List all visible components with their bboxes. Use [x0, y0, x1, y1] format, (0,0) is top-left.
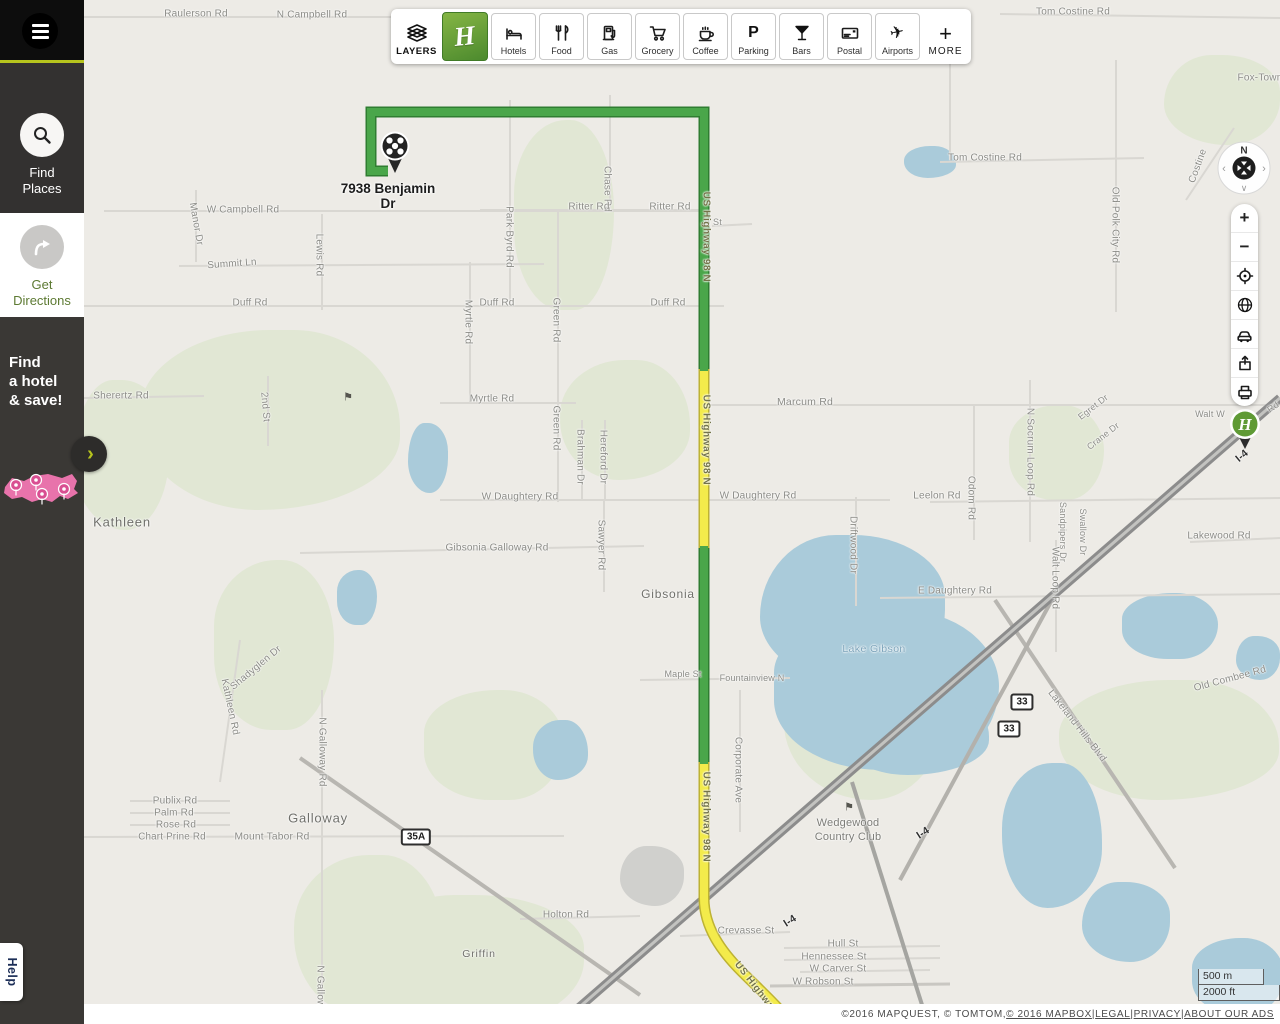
road-label: Ritter Rd	[568, 202, 609, 213]
layers-icon	[405, 21, 429, 47]
road-label: N Campbell Rd	[277, 10, 347, 21]
destination-address-label: 7938 Benjamin Dr	[341, 181, 436, 211]
road-label: Odom Rd	[966, 476, 977, 520]
chevron-right-icon: ›	[87, 443, 94, 466]
toolbar-food-button[interactable]: Food	[539, 13, 584, 60]
zoom-in-button[interactable]: +	[1231, 204, 1258, 233]
attribution-link[interactable]: ABOUT OUR ADS	[1184, 1009, 1274, 1020]
layers-button[interactable]: LAYERS	[394, 13, 439, 60]
road-label: Ritter Rd	[649, 202, 690, 213]
hotel-ad-banner[interactable]: Find a hotel & save!	[0, 317, 84, 1024]
toolbar-button-label: Airports	[882, 46, 913, 56]
compass-control[interactable]: N ‹ › ∨	[1216, 140, 1272, 196]
globe-icon	[1236, 296, 1254, 314]
road-label: W Campbell Rd	[207, 205, 280, 216]
road-label: Duff Rd	[479, 298, 514, 309]
road-label: Raulerson Rd	[164, 9, 228, 20]
toolbar-bars-button[interactable]: Bars	[779, 13, 824, 60]
road-label: Leelon Rd	[913, 491, 960, 502]
zoom-out-button[interactable]: −	[1231, 233, 1258, 262]
road-label: Rose Rd	[156, 820, 196, 831]
toolbar-button-label: Gas	[601, 46, 618, 56]
water-label: Lake Gibson	[842, 643, 905, 655]
town-label: Kathleen	[93, 515, 151, 530]
toolbar-button-label: Postal	[837, 46, 862, 56]
road-label: N Galloway Rd	[317, 717, 328, 786]
more-button[interactable]: + MORE	[923, 13, 968, 60]
plus-icon: +	[1240, 209, 1250, 228]
scale-imperial: 2000 ft	[1198, 985, 1280, 1001]
toolbar-gas-button[interactable]: Gas	[587, 13, 632, 60]
toolbar-button-label: Grocery	[641, 46, 673, 56]
map-canvas[interactable]: Raulerson RdN Campbell RdBritt Rd NW Soc…	[84, 0, 1280, 1024]
poi-toolbar: LAYERS H Hotels Food Gas Grocery CoffeeP…	[391, 9, 971, 64]
road-label: Lakewood Rd	[1187, 531, 1250, 542]
highway-shield: 33	[997, 721, 1020, 738]
road-label: Publix Rd	[153, 796, 198, 807]
road-label: Fountainview N	[720, 673, 785, 683]
road-label: US Highway 98 N	[701, 192, 712, 283]
road-label: US Highway 98 N	[701, 772, 712, 863]
airports-icon: ✈	[890, 20, 904, 46]
road-label: Crevasse St	[718, 926, 775, 937]
road-label: Lewis Rd	[314, 234, 325, 277]
toolbar-postal-button[interactable]: Postal	[827, 13, 872, 60]
toolbar-button-label: Food	[551, 46, 572, 56]
traffic-button[interactable]	[1231, 320, 1258, 349]
road-label: Tom Costine Rd	[948, 153, 1022, 164]
golf-flag-icon: ⚑	[343, 391, 353, 404]
sidebar: Find Places Get Directions Find a hotel …	[0, 0, 84, 1024]
road-label: Country Club	[815, 831, 882, 843]
postal-icon	[840, 20, 860, 46]
road-label: E Daughtery Rd	[918, 586, 992, 597]
hamburger-menu-icon[interactable]	[22, 13, 58, 49]
map-attribution: ©2016 MAPQUEST, © TOMTOM, © 2016 MAPBOX …	[84, 1004, 1280, 1024]
map-zoom-controls: +−	[1231, 204, 1258, 406]
road-label: Hennessee St	[801, 952, 866, 963]
road-label: Hereford Dr	[598, 430, 609, 484]
toolbar-parking-button[interactable]: P Parking	[731, 13, 776, 60]
search-icon	[20, 113, 64, 157]
golf-flag-icon: ⚑	[844, 801, 854, 814]
road-label: Holton Rd	[543, 910, 589, 921]
road-label: Gibsonia Galloway Rd	[446, 543, 549, 554]
svg-text:H: H	[1237, 415, 1252, 434]
attribution-text: ©2016 MAPQUEST, © TOMTOM,	[841, 1009, 1006, 1020]
print-button[interactable]	[1231, 378, 1258, 406]
bars-icon	[792, 20, 812, 46]
road-label: Corporate Ave	[733, 737, 744, 803]
road-label: W Daughtery Rd	[482, 492, 559, 503]
road-label: W Daughtery Rd	[720, 491, 797, 502]
highway-shield: 33	[1010, 694, 1033, 711]
toolbar-airports-button[interactable]: ✈ Airports	[875, 13, 920, 60]
town-label: Griffin	[462, 948, 495, 960]
parking-icon: P	[748, 20, 759, 46]
locate-icon	[1236, 267, 1254, 285]
coffee-icon	[696, 20, 716, 46]
road-label: Marcum Rd	[777, 396, 833, 408]
holiday-inn-hotel-pin-icon[interactable]: H	[1226, 408, 1264, 454]
sidebar-item-get-directions[interactable]: Get Directions	[0, 213, 84, 317]
help-tab[interactable]: Help	[0, 943, 23, 1001]
plus-icon: +	[939, 21, 952, 47]
road-label: Green Rd	[551, 406, 562, 451]
road-label: Fox-Town	[1238, 73, 1280, 84]
locate-button[interactable]	[1231, 262, 1258, 291]
svg-text:‹: ‹	[1222, 163, 1226, 175]
share-icon	[1236, 354, 1254, 372]
directions-arrow-icon	[20, 225, 64, 269]
road-label: Myrtle Rd	[470, 394, 515, 405]
road-label: Sawyer Rd	[596, 520, 607, 571]
road-label: Hull St	[828, 939, 859, 950]
road-label: Wedgewood	[817, 817, 880, 829]
traffic-icon	[1235, 325, 1254, 344]
minus-icon: −	[1240, 238, 1250, 257]
attribution-link[interactable]: LEGAL	[1095, 1009, 1130, 1020]
svg-text:›: ›	[1262, 163, 1266, 175]
road-label: Duff Rd	[232, 298, 267, 309]
toolbar-button-label: Coffee	[692, 46, 718, 56]
road-label: W Robson St	[792, 977, 853, 988]
category-buttons: Hotels Food Gas Grocery CoffeeP Parking …	[491, 13, 920, 60]
toolbar-button-label: Parking	[738, 46, 769, 56]
satellite-button[interactable]	[1231, 291, 1258, 320]
road-label: US Highway 98 N	[701, 395, 712, 486]
toolbar-hotels-button[interactable]: Hotels	[491, 13, 536, 60]
road-label: Walt W	[1195, 409, 1225, 419]
road-label: Myrtle Rd	[463, 300, 474, 345]
road-label: Driftwood Dr	[848, 516, 859, 574]
road-label: Swallow Dr	[1078, 508, 1088, 555]
road-label: Chart Prine Rd	[138, 832, 206, 843]
holiday-inn-brand-button[interactable]: H	[442, 12, 488, 61]
hotels-icon	[504, 20, 524, 46]
attribution-link[interactable]: PRIVACY	[1134, 1009, 1181, 1020]
toolbar-coffee-button[interactable]: Coffee	[683, 13, 728, 60]
mapquest-app: { "sidebar": { "items": [ {"id":"find-pl…	[0, 0, 1280, 1024]
toolbar-grocery-button[interactable]: Grocery	[635, 13, 680, 60]
road-label: Sherertz Rd	[93, 391, 149, 402]
road-label: Park Byrd Rd	[504, 206, 515, 268]
road-label: Old Polk City Rd	[1110, 187, 1121, 264]
road-label: Brahman Dr	[575, 429, 586, 485]
toolbar-button-label: Hotels	[501, 46, 527, 56]
destination-pin-icon[interactable]	[377, 130, 413, 176]
svg-text:∨: ∨	[1241, 183, 1248, 193]
sidebar-header	[0, 0, 84, 60]
grocery-icon	[648, 20, 668, 46]
road-label: Green Rd	[551, 298, 562, 343]
road-label: Walt Loop Rd	[1050, 547, 1061, 610]
road-label: N Socrum Loop Rd	[1025, 408, 1036, 496]
road-label: Duff Rd	[650, 298, 685, 309]
highway-shield: 35A	[401, 829, 431, 846]
food-icon	[552, 20, 572, 46]
print-icon	[1236, 383, 1254, 401]
scale-metric: 500 m	[1198, 969, 1264, 985]
sidebar-expand-chevron[interactable]: ›	[71, 436, 107, 472]
road-label: Maple St	[664, 669, 701, 679]
map-scale: 500 m 2000 ft	[1198, 969, 1280, 1001]
toolbar-button-label: Bars	[792, 46, 811, 56]
hotel-ad-text: Find a hotel & save!	[0, 317, 84, 410]
road-label: Mount Tabor Rd	[234, 832, 309, 843]
town-label: Gibsonia	[641, 587, 695, 601]
svg-text:N: N	[1240, 146, 1247, 157]
gas-icon	[600, 20, 620, 46]
road-label: Tom Costine Rd	[1036, 7, 1110, 18]
road-label: Palm Rd	[154, 808, 194, 819]
sidebar-item-find-places[interactable]: Find Places	[0, 63, 84, 213]
holiday-inn-logo: H	[453, 20, 477, 53]
town-label: Galloway	[288, 811, 348, 826]
attribution-link[interactable]: © 2016 MAPBOX	[1006, 1009, 1092, 1020]
usa-map-graphic	[2, 469, 82, 521]
share-button[interactable]	[1231, 349, 1258, 378]
road-label: W Carver St	[810, 964, 867, 975]
